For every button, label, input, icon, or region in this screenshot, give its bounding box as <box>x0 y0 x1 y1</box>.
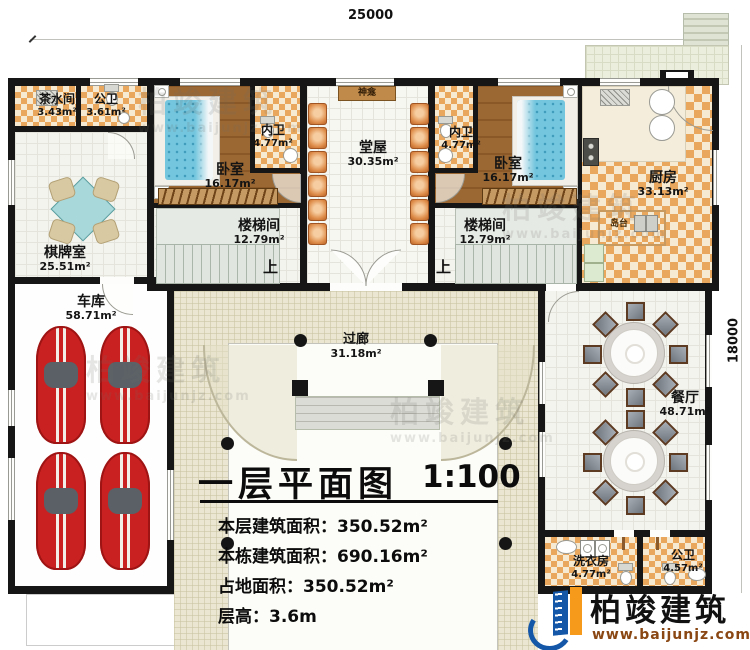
cushion-icon <box>308 223 327 245</box>
title-row: 层高：3.6m <box>218 602 317 627</box>
entry-steps <box>295 396 440 430</box>
cushion-icon <box>410 223 429 245</box>
logo-website: www.baijunjz.com <box>592 627 750 643</box>
fridge-icon <box>584 244 604 263</box>
room-label-kitchen: 厨房33.13m² <box>622 170 704 199</box>
window <box>706 335 712 387</box>
window <box>706 445 712 500</box>
room-label-dining: 餐厅48.71m² <box>646 390 724 419</box>
fridge-icon <box>584 263 604 282</box>
up-label-right: 上 <box>436 256 451 277</box>
window <box>8 160 15 205</box>
chair-icon <box>626 410 645 429</box>
cushion-icon <box>410 199 429 221</box>
room-label-wc-left: 内卫4.77m² <box>240 124 306 149</box>
plan-scale: 1:100 <box>422 459 521 495</box>
driveway-outline <box>26 594 178 646</box>
title-row: 本栋建筑面积：690.16m² <box>218 542 428 567</box>
room-label-stair-left: 楼梯间12.79m² <box>212 218 306 247</box>
dimension-height: 18000 <box>727 311 742 371</box>
window <box>713 150 719 205</box>
entry-pier <box>428 380 444 396</box>
wall-hall-left <box>300 78 307 291</box>
window <box>8 458 15 520</box>
kitchen-basin-icon <box>649 115 675 141</box>
window <box>167 470 174 540</box>
column-dot <box>221 437 234 450</box>
room-label-garage: 车库58.71m² <box>46 294 136 323</box>
room-label-wc-bottom: 公卫4.57m² <box>654 549 712 574</box>
stove-icon <box>583 138 599 166</box>
room-label-chess: 棋牌室25.51m² <box>20 245 110 274</box>
shrine-label: 神龛 <box>358 88 376 98</box>
wall-laundry-wc-divider <box>637 537 643 586</box>
cushion-icon <box>308 151 327 173</box>
column-dot <box>499 437 512 450</box>
chair-icon <box>583 453 602 472</box>
window <box>180 78 240 86</box>
stair-right-treads <box>455 244 577 284</box>
entry-pier <box>292 380 308 396</box>
logo-building-icon <box>553 590 568 636</box>
floor-plan-canvas: 25000 18000 <box>0 0 750 650</box>
room-label-bedroom-right: 卧室16.17m² <box>470 156 546 185</box>
dining-table <box>603 322 665 384</box>
room-label-corridor: 过廊31.18m² <box>310 333 402 361</box>
door-gap-chess <box>100 277 134 284</box>
chair-icon <box>669 453 688 472</box>
sink-icon <box>283 148 298 163</box>
wall-middle-horizontal <box>147 283 712 291</box>
island-sink-icon <box>634 215 658 232</box>
window <box>498 78 560 86</box>
double-door-hall <box>330 248 402 288</box>
terrace-steps <box>683 13 729 47</box>
island-label: 岛台 <box>610 216 628 229</box>
door-gap-wc-bottom <box>650 530 670 537</box>
shrine-box: 神龛 <box>338 86 396 101</box>
chair-icon <box>626 388 645 407</box>
dining-table <box>603 430 665 492</box>
wall-hall-right <box>428 78 435 291</box>
car-icon <box>36 326 86 444</box>
room-label-hall: 堂屋30.35m² <box>328 140 418 169</box>
wall-garage-right <box>167 277 174 594</box>
wardrobe-right <box>482 188 577 205</box>
stair-left-treads <box>156 244 280 284</box>
room-label-wc-top: 公卫3.61m² <box>76 93 136 118</box>
nightstand-icon <box>154 85 169 98</box>
up-label-left: 上 <box>263 256 278 277</box>
range-hood-icon <box>600 89 630 106</box>
room-label-bedroom-left: 卧室16.17m² <box>192 162 268 191</box>
title-underline <box>200 500 498 503</box>
door-gap-laundry <box>614 530 634 537</box>
column-dot <box>424 334 437 347</box>
door-leaf-laundry <box>622 537 625 550</box>
wall-garage-bottom <box>8 586 174 594</box>
car-icon <box>100 452 150 570</box>
cushion-icon <box>410 175 429 197</box>
logo-building-icon <box>570 587 582 635</box>
title-row: 本层建筑面积：350.52m² <box>218 512 428 537</box>
window <box>336 78 394 86</box>
window <box>539 432 545 477</box>
column-dot <box>499 537 512 550</box>
cushion-icon <box>308 175 327 197</box>
window <box>600 78 640 86</box>
chair-icon <box>626 302 645 321</box>
kitchen-basin-icon <box>649 89 675 115</box>
window <box>539 362 545 404</box>
car-icon <box>36 452 86 570</box>
column-dot <box>294 334 307 347</box>
nightstand-icon <box>563 85 578 98</box>
room-label-laundry: 洗衣房4.77m² <box>560 555 622 580</box>
room-label-stair-right: 楼梯间12.79m² <box>438 218 532 247</box>
cushion-icon <box>308 103 327 125</box>
chair-icon <box>583 345 602 364</box>
sink-icon <box>556 540 577 554</box>
cushion-icon <box>308 199 327 221</box>
window <box>8 390 15 426</box>
cushion-icon <box>410 103 429 125</box>
kitchen-top-stub-inner <box>666 72 688 78</box>
company-logo: 柏竣建筑 www.baijunjz.com <box>528 585 744 647</box>
chair-icon <box>626 496 645 515</box>
dimension-line-top <box>30 39 696 40</box>
car-icon <box>100 326 150 444</box>
logo-company-name: 柏竣建筑 <box>590 585 730 630</box>
room-label-wc-right: 内卫4.77m² <box>428 126 494 151</box>
wall-chess-right <box>147 78 154 284</box>
wall-tea-bottom <box>8 126 154 132</box>
dimension-width: 25000 <box>348 8 393 23</box>
cushion-icon <box>308 127 327 149</box>
title-row: 占地面积：350.52m² <box>218 572 394 597</box>
logo-swoosh-icon <box>524 605 576 650</box>
door-gap-dining <box>546 283 576 291</box>
chair-icon <box>669 345 688 364</box>
